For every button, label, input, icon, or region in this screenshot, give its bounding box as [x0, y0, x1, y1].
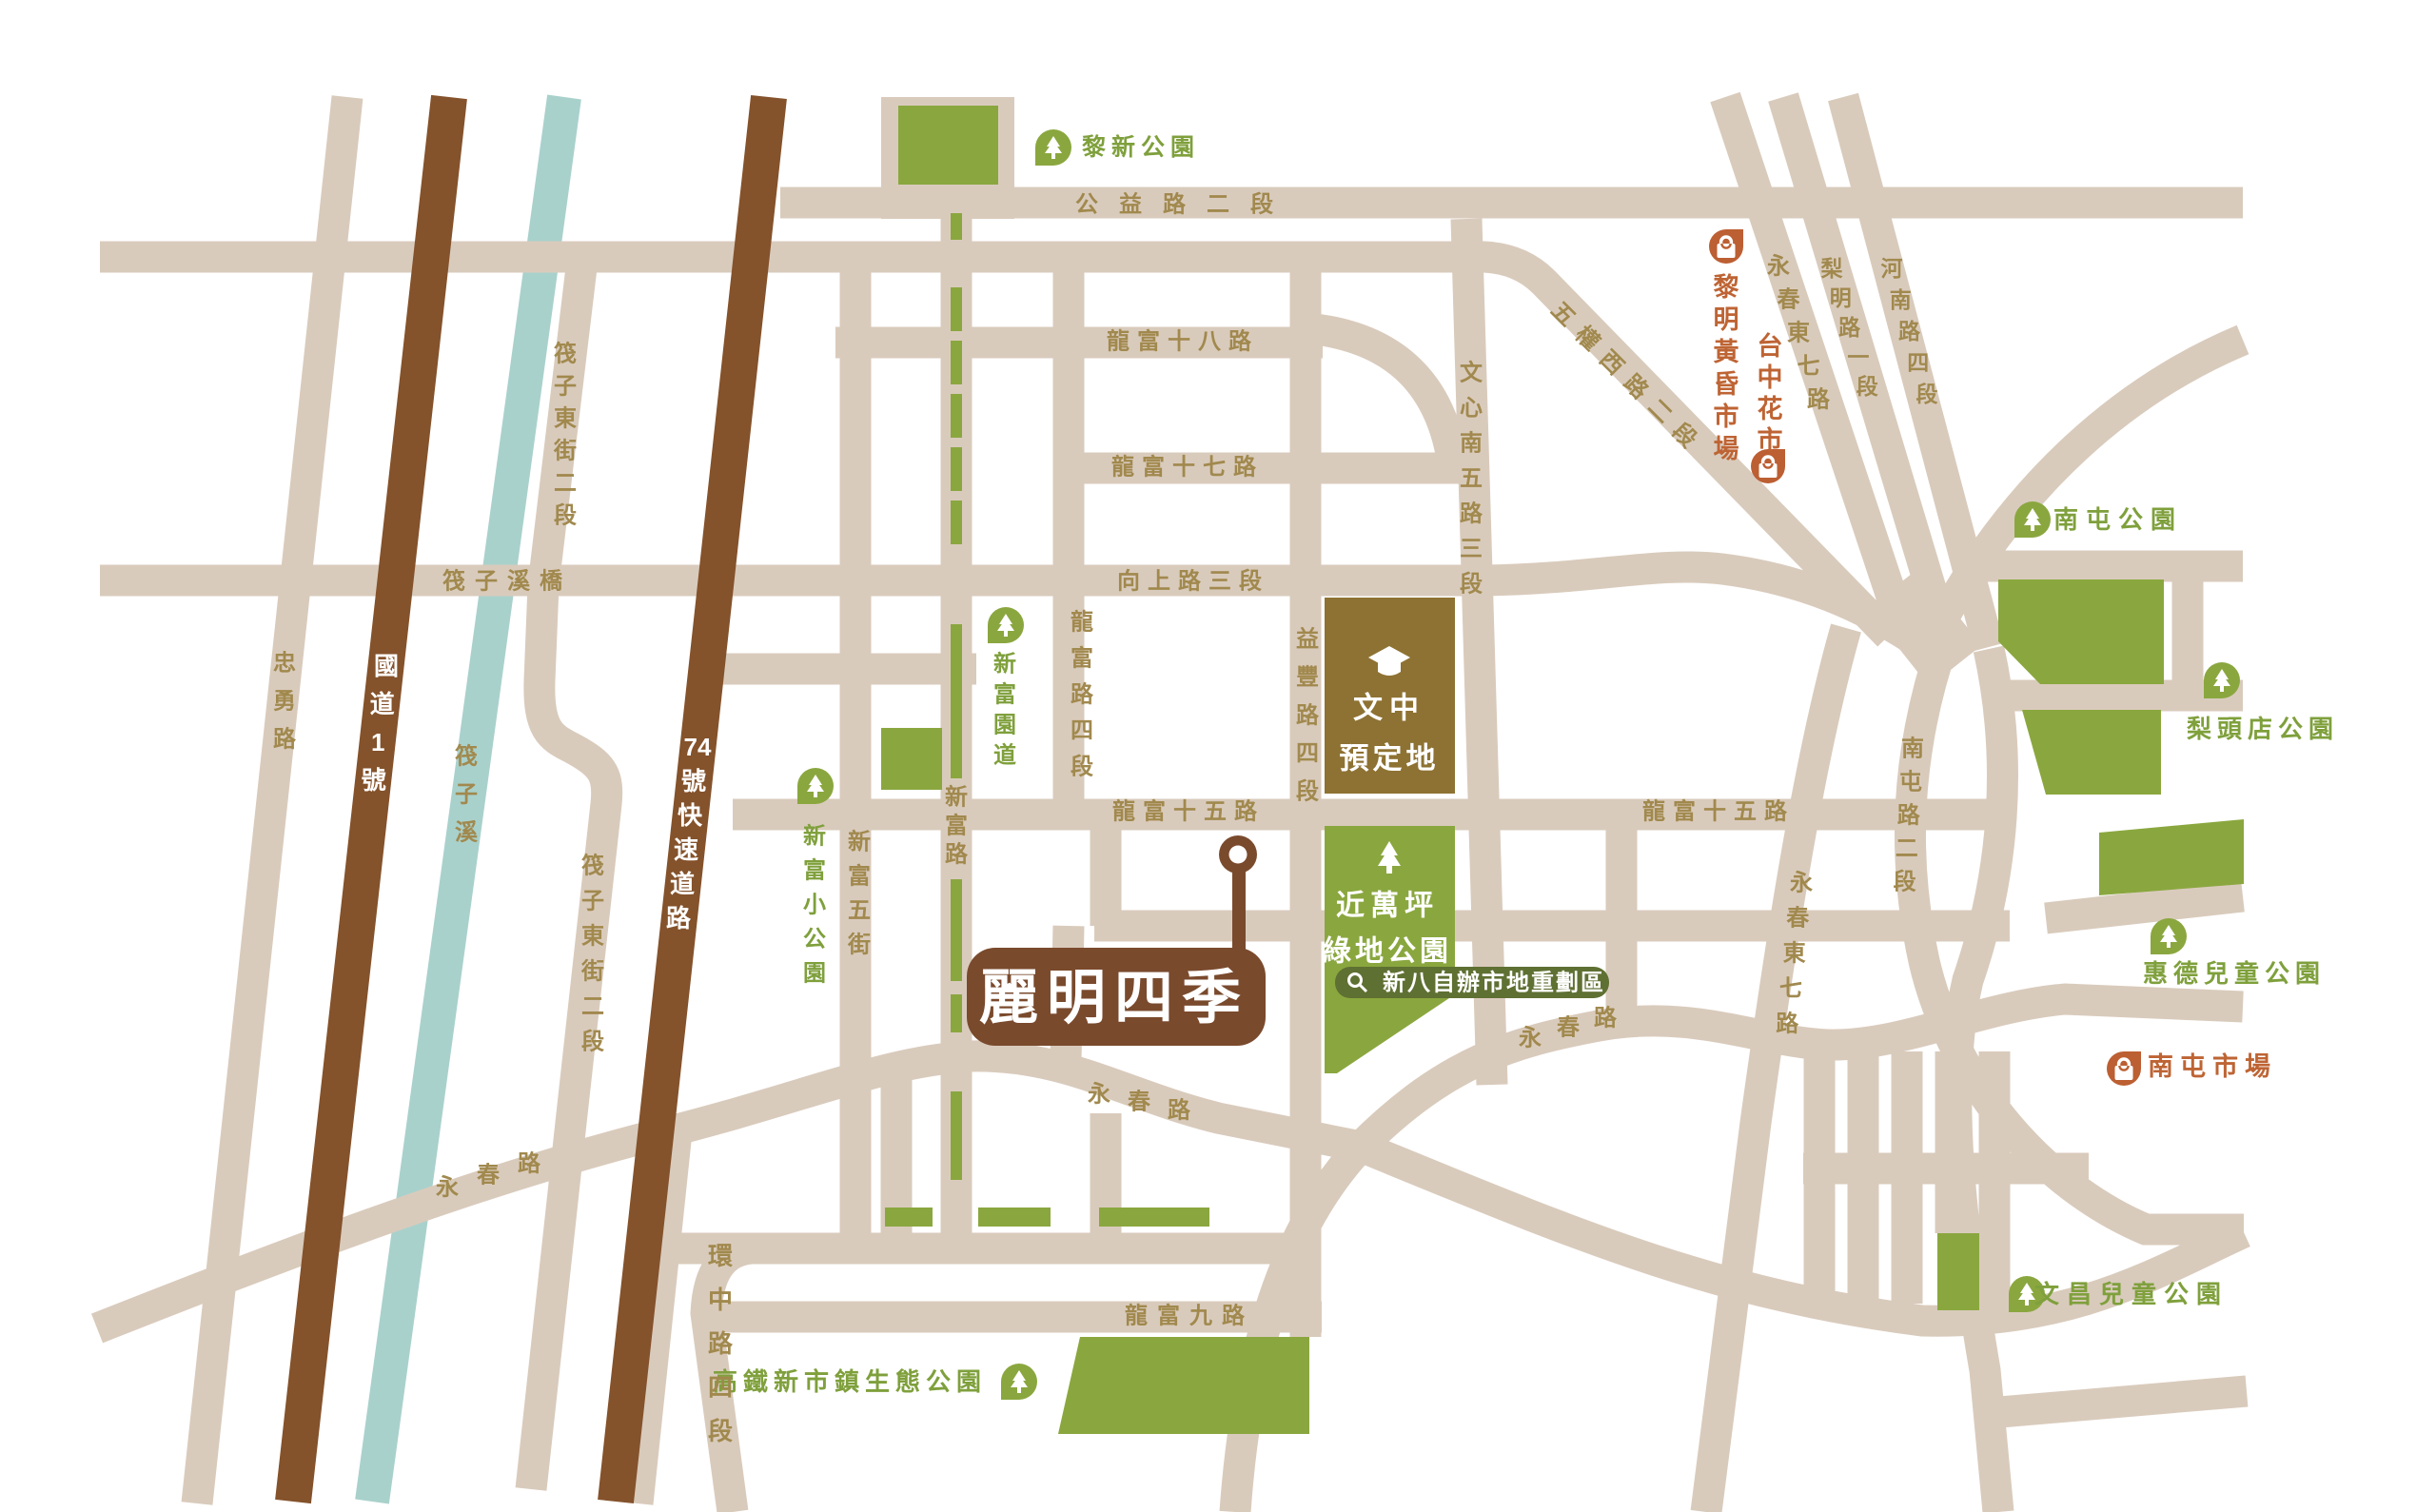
- svg-text:路: 路: [666, 904, 692, 933]
- svg-text:道: 道: [670, 870, 695, 898]
- svg-text:綠地公園: 綠地公園: [1323, 935, 1452, 968]
- svg-text:高鐵新市鎮生態公園: 高鐵新市鎮生態公園: [713, 1367, 987, 1396]
- svg-text:富: 富: [993, 681, 1016, 708]
- svg-text:路: 路: [1594, 1005, 1618, 1031]
- svg-text:路: 路: [1838, 315, 1861, 340]
- svg-text:心: 心: [1460, 396, 1483, 422]
- svg-text:子: 子: [455, 782, 478, 808]
- svg-text:花: 花: [1758, 395, 1783, 423]
- svg-text:南: 南: [1901, 736, 1924, 762]
- svg-text:公益路二段: 公益路二段: [1075, 191, 1294, 218]
- svg-text:筏: 筏: [455, 743, 478, 770]
- svg-text:黃: 黃: [1714, 338, 1739, 366]
- svg-text:東: 東: [581, 924, 604, 950]
- svg-text:南屯市場: 南屯市場: [2148, 1051, 2277, 1081]
- svg-text:國: 國: [374, 652, 399, 680]
- svg-text:梨: 梨: [1821, 256, 1843, 281]
- svg-text:段: 段: [1460, 571, 1483, 598]
- svg-text:文: 文: [1460, 360, 1483, 386]
- svg-text:預定地: 預定地: [1340, 742, 1440, 776]
- svg-text:號: 號: [362, 766, 386, 795]
- svg-text:明: 明: [1830, 285, 1852, 310]
- svg-text:永: 永: [1790, 871, 1813, 896]
- svg-text:路: 路: [1460, 501, 1483, 527]
- svg-text:龍富十五路: 龍富十五路: [1642, 798, 1795, 825]
- svg-text:勇: 勇: [273, 689, 296, 715]
- svg-text:五: 五: [1460, 466, 1483, 492]
- svg-text:路: 路: [1776, 1011, 1799, 1037]
- svg-text:街: 街: [553, 438, 577, 464]
- svg-text:永: 永: [1519, 1026, 1542, 1051]
- svg-text:中: 中: [708, 1286, 733, 1314]
- svg-text:龍富九路: 龍富九路: [1125, 1303, 1254, 1329]
- svg-text:東: 東: [1787, 321, 1810, 346]
- svg-text:段: 段: [1856, 374, 1878, 399]
- svg-text:明: 明: [1714, 305, 1739, 334]
- svg-text:段: 段: [1071, 754, 1093, 780]
- svg-text:五: 五: [848, 898, 871, 924]
- svg-text:一: 一: [1847, 344, 1869, 369]
- svg-text:路: 路: [518, 1150, 541, 1177]
- svg-text:段: 段: [1296, 778, 1319, 805]
- svg-text:路: 路: [1296, 702, 1320, 729]
- svg-text:三: 三: [1460, 537, 1483, 562]
- svg-text:南: 南: [1890, 287, 1912, 312]
- svg-text:七: 七: [1798, 354, 1820, 380]
- svg-text:市: 市: [1758, 425, 1783, 455]
- svg-text:七: 七: [1779, 976, 1802, 1002]
- svg-text:益: 益: [1296, 626, 1319, 653]
- svg-text:春: 春: [1128, 1090, 1150, 1115]
- svg-text:四: 四: [1071, 718, 1093, 744]
- svg-text:黎: 黎: [1714, 273, 1739, 302]
- svg-text:黎新公園: 黎新公園: [1082, 133, 1200, 161]
- svg-text:74: 74: [684, 733, 712, 761]
- svg-text:惠德兒童公園: 惠德兒童公園: [2143, 959, 2326, 988]
- svg-text:子: 子: [554, 374, 577, 400]
- svg-text:新八自辦市地重劃區: 新八自辦市地重劃區: [1383, 970, 1605, 996]
- svg-text:段: 段: [1894, 869, 1916, 895]
- svg-text:文昌兒童公園: 文昌兒童公園: [2034, 1280, 2229, 1308]
- svg-text:號: 號: [681, 767, 706, 795]
- svg-text:1: 1: [371, 728, 384, 756]
- svg-text:二: 二: [1896, 836, 1918, 862]
- svg-text:路: 路: [1071, 681, 1094, 708]
- svg-text:豐: 豐: [1296, 664, 1319, 691]
- svg-text:路: 路: [945, 841, 969, 868]
- svg-text:富: 富: [803, 857, 826, 884]
- svg-text:龍: 龍: [1071, 609, 1093, 636]
- svg-text:富: 富: [945, 813, 968, 839]
- svg-text:道: 道: [993, 742, 1016, 769]
- svg-text:新: 新: [803, 823, 826, 850]
- svg-text:昏: 昏: [1714, 370, 1739, 399]
- svg-text:近萬坪: 近萬坪: [1336, 891, 1439, 922]
- svg-text:溪: 溪: [455, 820, 479, 846]
- svg-text:段: 段: [708, 1417, 733, 1445]
- svg-text:新: 新: [848, 829, 871, 855]
- svg-text:向上路三段: 向上路三段: [1117, 568, 1269, 595]
- svg-text:路: 路: [273, 726, 297, 753]
- svg-text:速: 速: [674, 835, 698, 864]
- svg-text:二: 二: [554, 471, 577, 497]
- svg-text:永: 永: [436, 1175, 459, 1201]
- svg-text:筏: 筏: [581, 853, 604, 879]
- svg-text:南: 南: [1460, 431, 1483, 457]
- svg-text:忠: 忠: [273, 651, 296, 677]
- svg-text:小: 小: [803, 893, 826, 918]
- svg-text:富: 富: [848, 863, 871, 890]
- svg-text:街: 街: [847, 932, 871, 958]
- svg-text:園: 園: [993, 713, 1016, 738]
- svg-text:筏: 筏: [554, 341, 577, 367]
- svg-text:屯: 屯: [1899, 770, 1922, 795]
- svg-text:文中: 文中: [1353, 692, 1425, 725]
- svg-text:新: 新: [993, 651, 1016, 677]
- svg-text:四: 四: [1296, 741, 1319, 767]
- svg-text:永: 永: [1088, 1082, 1110, 1108]
- svg-text:梨頭店公園: 梨頭店公園: [2187, 715, 2339, 743]
- svg-text:新: 新: [945, 784, 968, 811]
- svg-text:東: 東: [1783, 941, 1806, 967]
- svg-text:春: 春: [1557, 1015, 1580, 1041]
- svg-text:龍富十七路: 龍富十七路: [1111, 454, 1264, 481]
- svg-text:公: 公: [803, 927, 826, 952]
- svg-text:龍富十八路: 龍富十八路: [1107, 328, 1259, 355]
- svg-text:東: 東: [554, 406, 577, 432]
- svg-text:路: 路: [1897, 802, 1921, 829]
- svg-text:河: 河: [1881, 256, 1903, 281]
- svg-text:園: 園: [803, 961, 826, 987]
- svg-text:南屯公園: 南屯公園: [2053, 505, 2183, 534]
- svg-text:富: 富: [1071, 645, 1093, 672]
- svg-text:二: 二: [581, 994, 604, 1020]
- svg-text:環: 環: [708, 1242, 734, 1270]
- svg-text:路: 路: [1168, 1097, 1191, 1124]
- svg-text:四: 四: [708, 1373, 733, 1402]
- svg-text:春: 春: [1778, 287, 1800, 313]
- svg-text:段: 段: [581, 1029, 604, 1055]
- svg-text:路: 路: [1898, 319, 1921, 344]
- svg-text:春: 春: [1786, 906, 1809, 932]
- svg-text:路: 路: [1807, 386, 1831, 413]
- svg-text:永: 永: [1767, 254, 1790, 280]
- svg-text:子: 子: [581, 889, 604, 914]
- svg-text:路: 路: [708, 1329, 734, 1358]
- svg-text:筏子溪橋: 筏子溪橋: [442, 568, 572, 595]
- svg-text:快: 快: [678, 801, 703, 830]
- svg-text:中: 中: [1758, 363, 1783, 392]
- svg-text:段: 段: [554, 502, 577, 529]
- svg-text:麗明四季: 麗明四季: [979, 966, 1249, 1031]
- svg-text:四: 四: [1907, 350, 1929, 375]
- svg-text:台: 台: [1758, 331, 1783, 361]
- svg-text:市: 市: [1714, 402, 1739, 431]
- svg-text:道: 道: [370, 690, 395, 718]
- svg-text:段: 段: [1916, 382, 1938, 406]
- svg-text:龍富十五路: 龍富十五路: [1112, 798, 1265, 825]
- svg-text:街: 街: [580, 958, 604, 985]
- svg-text:春: 春: [477, 1163, 500, 1188]
- svg-text:場: 場: [1714, 435, 1739, 463]
